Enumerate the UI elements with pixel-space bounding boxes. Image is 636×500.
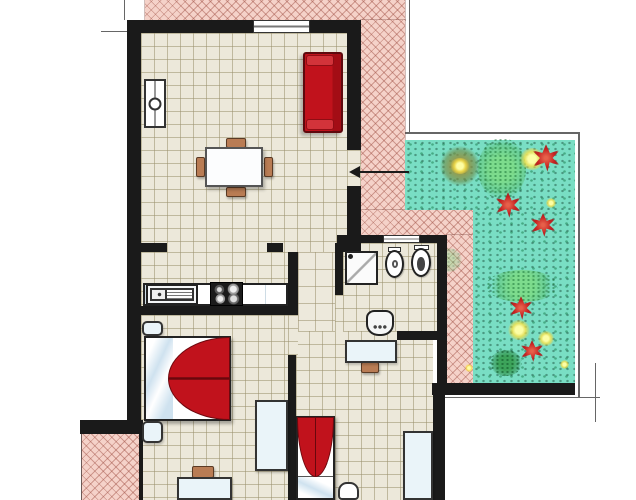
bedroom1-door-opening: [288, 315, 298, 355]
wall-bathroom-left: [335, 243, 343, 295]
wall-east-upper: [347, 20, 361, 150]
wall-bathroom-bottom: [397, 331, 447, 340]
garden-glow-olive-center: [450, 158, 470, 174]
wall-bathroom-top-a: [337, 235, 383, 243]
garden-yellow-dot-1: [546, 198, 556, 208]
wall-living-divider-b: [267, 243, 283, 252]
wall-bathroom-right: [437, 235, 447, 383]
wall-terrace-sw-right: [139, 434, 143, 500]
sofa: [303, 52, 343, 133]
garden-bush-light-1: [478, 138, 526, 200]
garden-extension-line-h: [440, 397, 600, 398]
terrace-north-strip: [145, 0, 405, 20]
garden-yellow-dot-2: [560, 360, 569, 369]
bathroom-door-opening: [335, 295, 343, 333]
garden-yellow-dot-3: [465, 364, 473, 372]
entrance-arrow-line: [354, 171, 409, 173]
garden-extension-line-v: [595, 363, 596, 422]
wall-garden-south: [432, 383, 575, 395]
garden-bush-light-2: [486, 270, 558, 302]
wall-kitchen-corridor: [288, 252, 298, 313]
wall-living-divider-a: [127, 243, 167, 252]
dining-chair-east: [264, 157, 273, 177]
garden-glow-3: [538, 331, 554, 346]
terrace-southwest: [82, 434, 142, 500]
toilet: [411, 248, 431, 277]
bedroom1-nightstand-bottom: [142, 421, 163, 443]
plot-extension-line-top-left-h: [101, 31, 129, 32]
wall-terrace-sw-top: [80, 420, 143, 434]
radiator: [144, 79, 166, 128]
single-bed: [296, 416, 335, 500]
garden-bush-dark-1: [490, 350, 522, 376]
plot-boundary-right-v: [409, 0, 410, 132]
bidet: [385, 250, 404, 278]
washbasin: [366, 310, 394, 336]
bedroom2-desk: [345, 340, 397, 363]
garden-border-right: [578, 132, 580, 397]
bedroom2-wardrobe: [403, 431, 433, 500]
dining-table: [205, 147, 263, 187]
bedroom1-wardrobe: [255, 400, 288, 471]
corridor-floor: [298, 252, 335, 333]
wall-north: [127, 20, 361, 33]
garden-border-top: [402, 132, 580, 134]
terrace-connector: [361, 210, 473, 235]
dining-chair-south: [226, 187, 246, 197]
wall-kitchen-bedroom1: [127, 306, 298, 315]
apartment-floor-plan: [0, 0, 636, 500]
living-room-window: [253, 20, 310, 33]
bathroom-window: [383, 235, 420, 243]
kitchen-sink: [146, 284, 198, 305]
terrace-east-band: [361, 20, 405, 210]
bedroom1-desk: [177, 477, 232, 500]
dining-chair-west: [196, 157, 205, 177]
garden-glow-2: [508, 320, 530, 340]
double-bed: [144, 336, 231, 421]
wall-west: [127, 20, 141, 433]
wall-bedroom1-corridor: [288, 355, 296, 500]
stove: [210, 282, 243, 306]
plot-extension-line-top-left-v: [124, 0, 125, 20]
bedroom1-nightstand-top: [142, 321, 163, 336]
bedroom2-desk-chair: [361, 362, 379, 373]
shower: [345, 251, 378, 285]
bedroom2-stool: [338, 482, 359, 500]
wall-bedroom2-right: [433, 395, 445, 500]
